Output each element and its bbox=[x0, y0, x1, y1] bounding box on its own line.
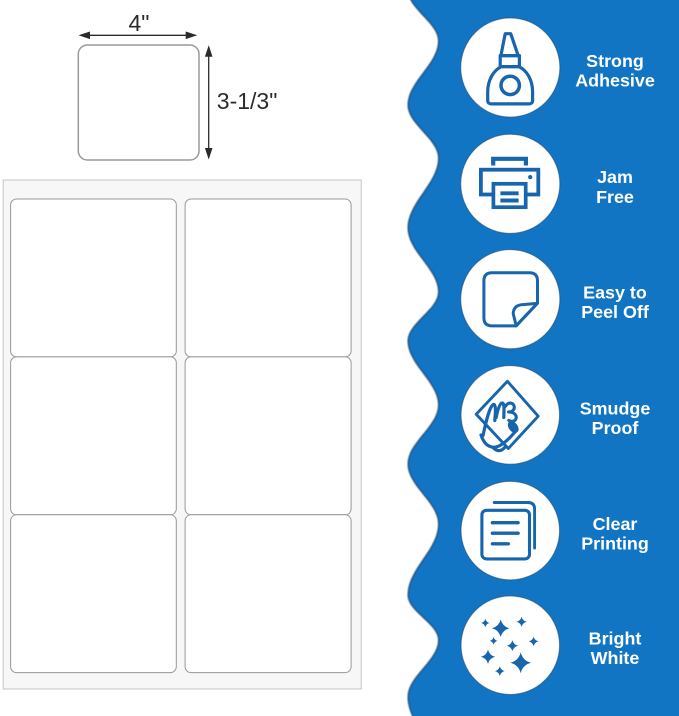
svg-text:4": 4" bbox=[129, 10, 150, 36]
svg-text:Easy toPeel Off: Easy toPeel Off bbox=[581, 283, 649, 323]
svg-text:BrightWhite: BrightWhite bbox=[589, 629, 642, 669]
svg-text:3-1/3": 3-1/3" bbox=[217, 88, 278, 114]
svg-text:JamFree: JamFree bbox=[596, 167, 634, 207]
svg-text:StrongAdhesive: StrongAdhesive bbox=[575, 51, 655, 91]
